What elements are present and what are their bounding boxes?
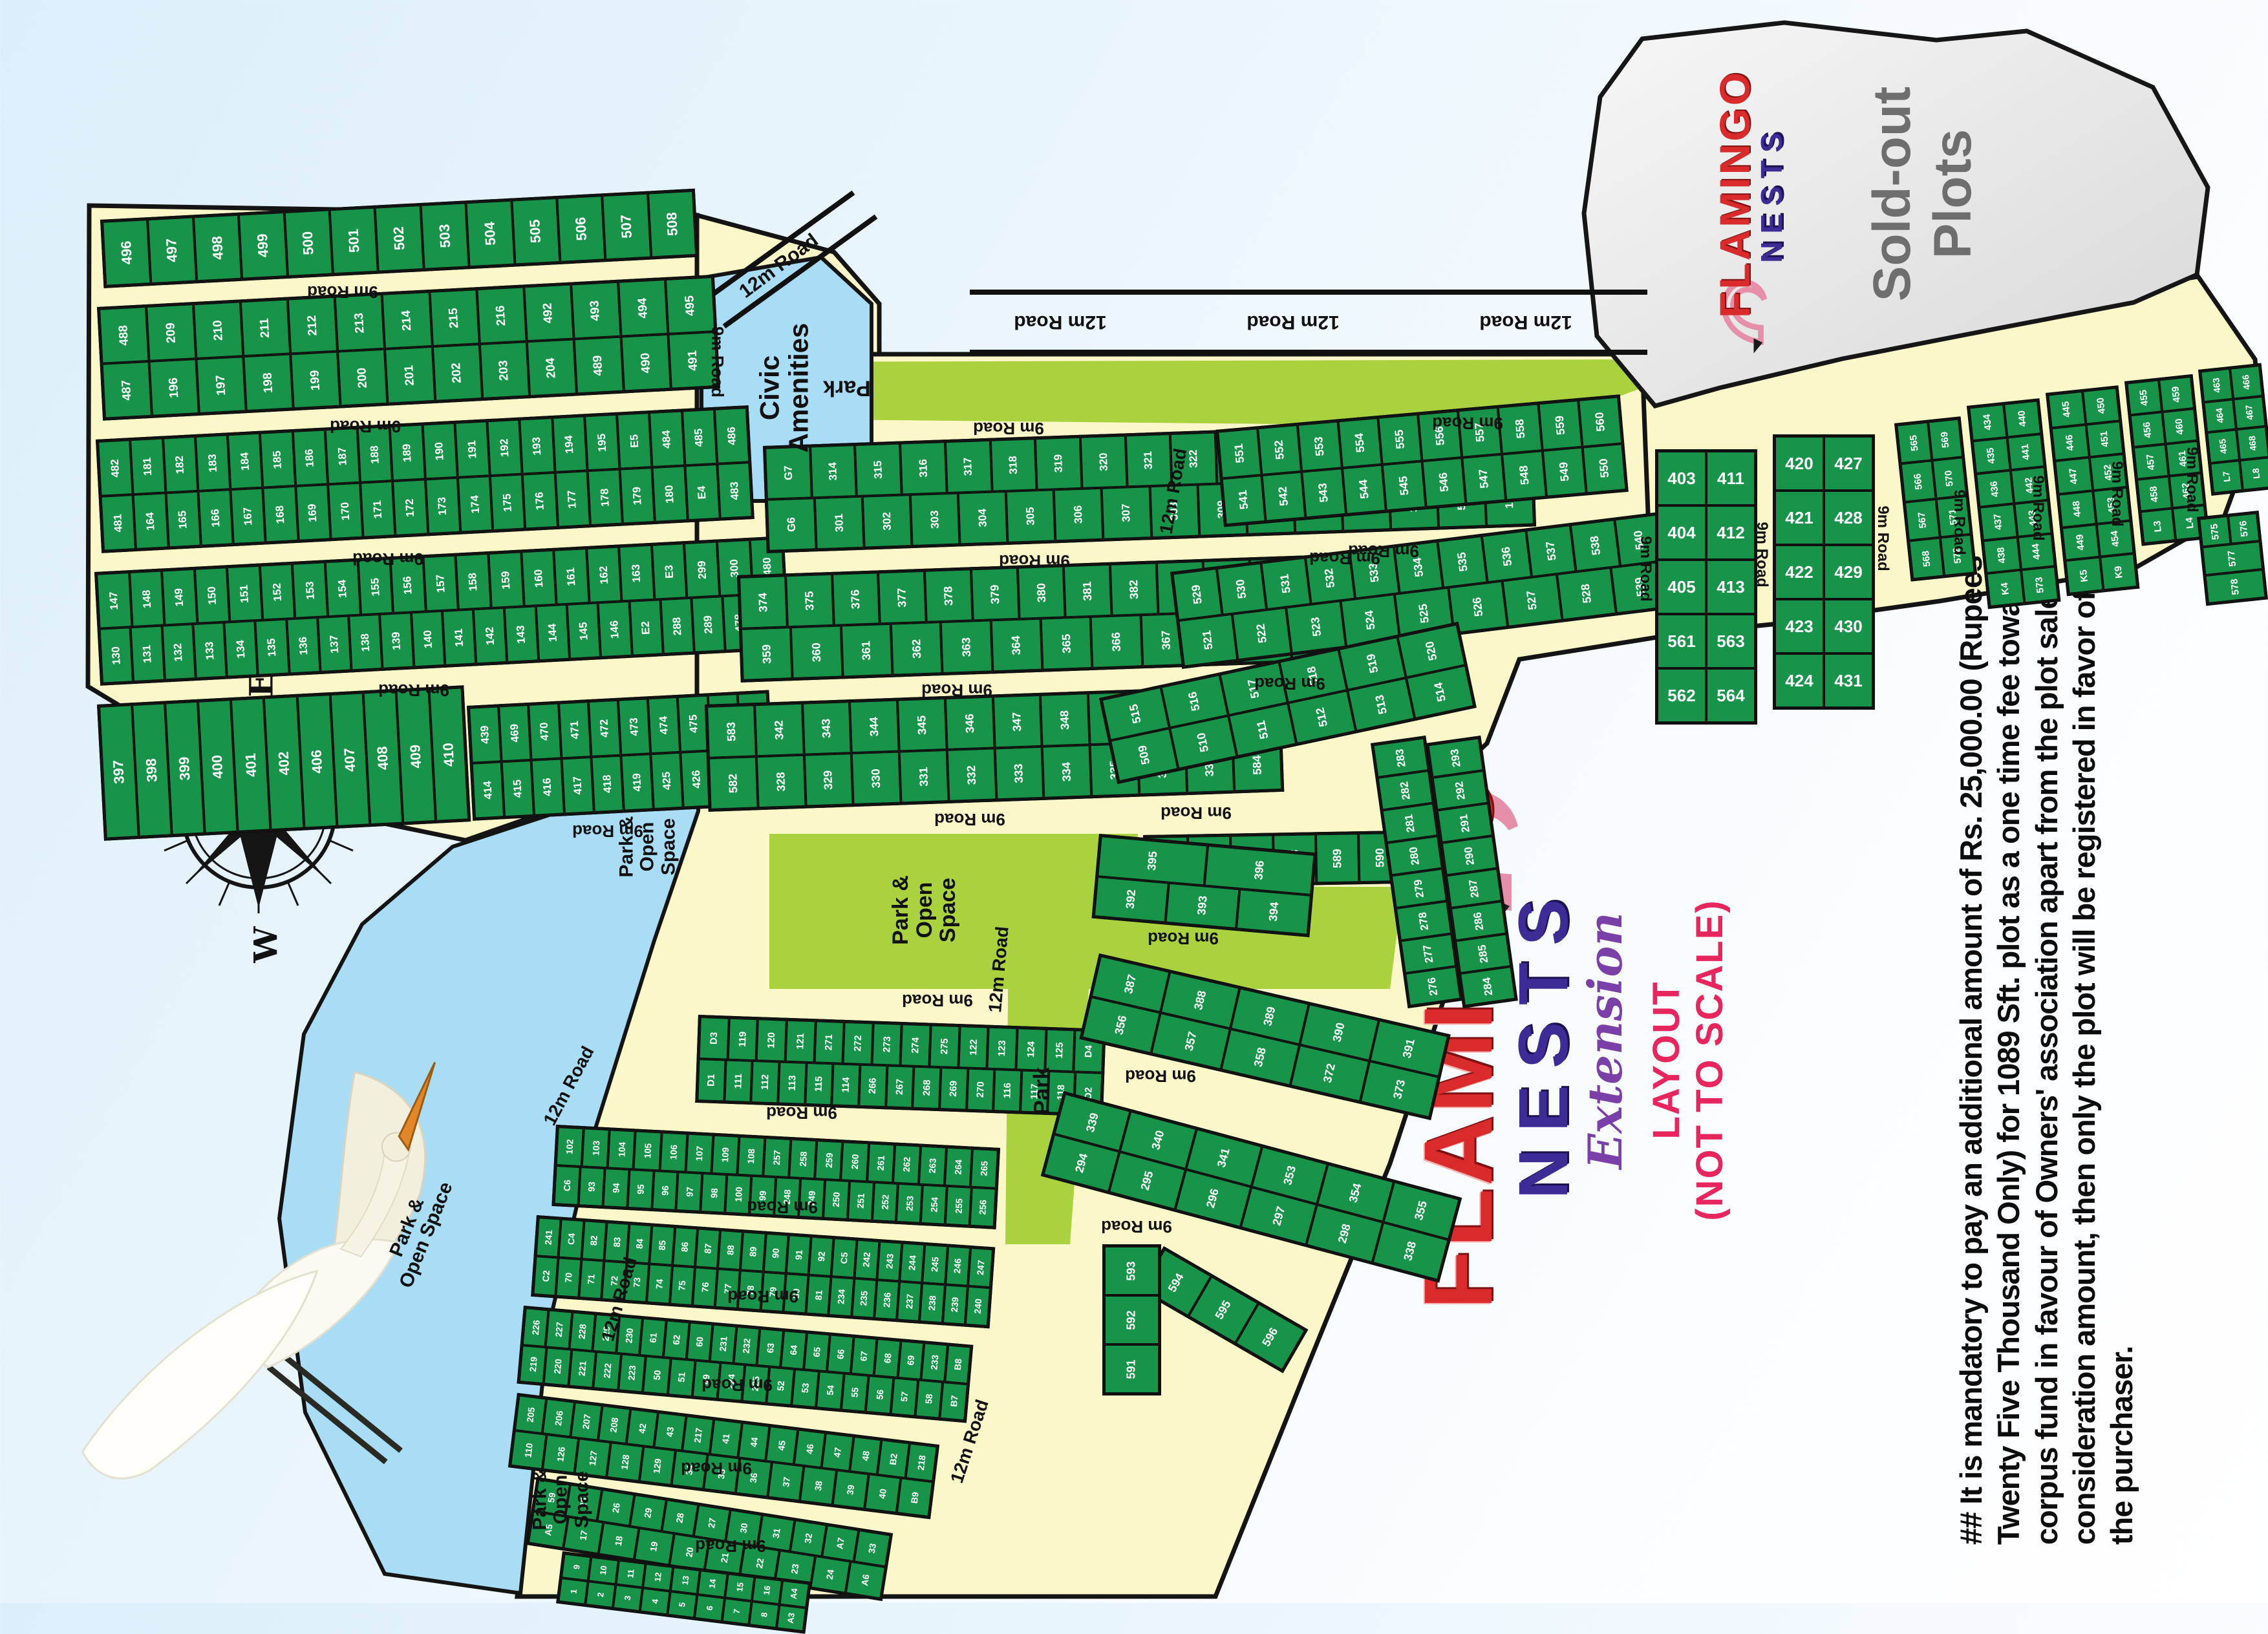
plot-194: 194 (552, 416, 588, 472)
plot-140: 140 (411, 611, 445, 667)
plot-number: 68 (882, 1353, 893, 1364)
plot-number: 266 (867, 1077, 879, 1094)
plot-number: 530 (1234, 578, 1250, 599)
plot-number: 576 (2238, 520, 2251, 537)
plot-403: 403 (1657, 451, 1706, 505)
plot-E3: E3 (652, 543, 687, 600)
plot-198: 198 (244, 354, 294, 411)
plot-number: 263 (927, 1158, 938, 1173)
plot-number: A6 (859, 1573, 872, 1586)
plot-number: 282 (1398, 780, 1413, 800)
plot-276: 276 (1405, 966, 1460, 1006)
plot-246: 246 (945, 1246, 970, 1286)
plot-number: 194 (562, 434, 576, 453)
plot-number: 268 (921, 1079, 933, 1096)
plot-number: 523 (1308, 617, 1324, 637)
plot-row: 422429 (1775, 545, 1873, 599)
plot-number: 183 (206, 453, 219, 472)
plot-number: B8 (952, 1358, 963, 1370)
plot-number: 18 (613, 1535, 625, 1547)
plot-237: 237 (897, 1281, 922, 1321)
plot-number: 421 (1785, 508, 1813, 528)
plot-217: 217 (682, 1416, 714, 1454)
plot-488: 488 (99, 306, 149, 364)
plot-129: 129 (639, 1446, 675, 1485)
plot-number: 561 (1667, 631, 1695, 652)
plot-number: 15 (734, 1582, 745, 1592)
plot-65: 65 (804, 1332, 830, 1371)
plot-number: 280 (1407, 845, 1422, 865)
plot-490: 490 (621, 334, 670, 392)
plot-578: 578 (2205, 569, 2265, 604)
plot-number: 283 (1393, 748, 1409, 768)
plot-284: 284 (1460, 966, 1515, 1006)
road-label: 9m Road (1432, 414, 1503, 432)
plot-103: 103 (582, 1128, 610, 1168)
road-label: 9m Road (999, 552, 1070, 570)
plot-176: 176 (522, 472, 558, 529)
plot-501: 501 (330, 207, 379, 275)
plot-number: 52 (775, 1381, 786, 1392)
plot-number: 492 (541, 302, 557, 324)
plot-95: 95 (627, 1169, 654, 1209)
plot-number: 420 (1785, 454, 1813, 474)
plot-B8: B8 (945, 1344, 971, 1383)
plot-A6: A6 (846, 1562, 886, 1599)
plot-number: K4 (1999, 582, 2011, 595)
plot-number: 304 (976, 509, 990, 527)
plot-153: 153 (292, 562, 328, 619)
plot-498: 498 (193, 215, 242, 282)
plot-269: 269 (939, 1067, 968, 1110)
plot-number: 365 (1059, 633, 1073, 653)
plot-number: 392 (1124, 889, 1139, 910)
plot-number: 56 (874, 1389, 885, 1400)
plot-number: 591 (1125, 1359, 1139, 1379)
plot-number: 156 (401, 575, 414, 594)
plot-number: 543 (1316, 483, 1332, 504)
plot-528: 528 (1556, 567, 1616, 620)
plot-number: 119 (737, 1032, 749, 1048)
plot-number: 503 (436, 224, 454, 248)
plot-number: 143 (515, 624, 528, 643)
plot-number: 467 (2243, 405, 2255, 421)
plot-209: 209 (146, 304, 196, 361)
plot-G6: G6 (767, 498, 817, 551)
plot-343: 343 (802, 701, 851, 755)
plot-number: 149 (173, 588, 186, 606)
plot-503: 503 (420, 202, 469, 270)
plot-565: 565 (1896, 422, 1932, 464)
plot-33: 33 (853, 1530, 890, 1567)
plot-242: 242 (854, 1240, 879, 1280)
plot-number: 258 (797, 1151, 808, 1167)
plot-105: 105 (634, 1130, 661, 1171)
plot-number: 471 (568, 721, 581, 739)
plot-number: 221 (577, 1361, 588, 1377)
compass-west: W (247, 926, 285, 962)
plot-number: 391 (1400, 1037, 1417, 1059)
plot-C2: C2 (533, 1256, 558, 1296)
plot-number: 511 (1254, 719, 1272, 741)
plot-467: 467 (2233, 396, 2266, 429)
plot-number: 180 (663, 484, 676, 503)
plot-128: 128 (607, 1442, 643, 1481)
plot-number: L7 (2221, 471, 2232, 483)
plot-number: 485 (692, 428, 706, 447)
plot-number: 510 (1195, 732, 1212, 754)
plot-70: 70 (556, 1258, 581, 1298)
plot-number: 468 (2247, 435, 2258, 451)
plot-block-K: 420427421428422429423430424431 (1773, 434, 1875, 710)
plot-507: 507 (602, 193, 651, 260)
plot-number: 130 (109, 646, 123, 664)
plot-number: 487 (120, 379, 135, 401)
plot-row: L7L8 (2210, 457, 2268, 494)
road-label: 9m Road (1125, 1067, 1196, 1085)
plot-number: 252 (879, 1194, 890, 1210)
plot-331: 331 (899, 750, 948, 803)
plot-417: 417 (561, 757, 594, 814)
plot-number: 27 (706, 1517, 718, 1529)
plot-342: 342 (754, 703, 804, 757)
plot-133: 133 (193, 622, 227, 679)
plot-number: 531 (1278, 573, 1294, 593)
plot-404: 404 (1657, 505, 1706, 560)
plot-330: 330 (851, 752, 901, 805)
plot-number: 333 (1012, 763, 1026, 783)
plot-number: A4 (789, 1588, 800, 1600)
plot-number: 43 (665, 1426, 676, 1437)
plot-304: 304 (958, 491, 1008, 545)
plot-number: 578 (2229, 578, 2242, 595)
plot-number: 262 (901, 1156, 912, 1172)
plot-number: 155 (369, 577, 382, 596)
plot-number: 257 (771, 1150, 782, 1165)
plot-number: 538 (1587, 535, 1603, 556)
plot-number: 450 (2095, 398, 2108, 415)
plot-number: 426 (690, 770, 703, 789)
plot-row: 565569 (1896, 419, 1963, 464)
plot-307: 307 (1102, 486, 1151, 540)
plot-number: 582 (726, 773, 740, 793)
plot-16: 16 (752, 1577, 782, 1604)
plot-76: 76 (692, 1267, 718, 1307)
plot-number: 377 (895, 588, 910, 608)
plot-column-C591: 593592591 (1102, 1244, 1161, 1395)
plot-183: 183 (195, 434, 231, 491)
plot-40: 40 (864, 1474, 901, 1513)
plot-number: 482 (109, 458, 122, 477)
plot-360: 360 (791, 625, 842, 679)
soldout-line2: Plots (1923, 26, 1984, 362)
layout-note-line2: (NOT TO SCALE) (1689, 866, 1732, 1254)
plot-number: 55 (849, 1387, 860, 1398)
plot-456: 456 (2130, 412, 2166, 447)
plot-58: 58 (915, 1379, 943, 1419)
plot-number: 589 (1331, 849, 1345, 868)
plot-120: 120 (756, 1019, 787, 1062)
plot-number: 359 (760, 644, 774, 664)
plot-number: 356 (1112, 1014, 1129, 1036)
plot-number: 67 (859, 1350, 870, 1361)
plot-number: 204 (544, 357, 559, 378)
plot-number: 435 (1985, 447, 1998, 465)
plot-158: 158 (456, 553, 491, 610)
plot-number: 573 (2033, 577, 2046, 594)
plot-number: 9 (571, 1564, 581, 1570)
plot-165: 165 (166, 491, 201, 548)
plot-number: 494 (636, 297, 651, 319)
plot-582: 582 (709, 756, 758, 810)
plot-L8: L8 (2240, 457, 2268, 491)
plot-241: 241 (536, 1217, 561, 1257)
plot-number: 307 (1120, 504, 1133, 522)
plot-number: 250 (831, 1192, 842, 1207)
plot-number: 406 (308, 749, 326, 774)
plot-254: 254 (921, 1185, 947, 1225)
plot-number: 70 (563, 1272, 574, 1283)
plot-number: 179 (630, 486, 644, 505)
road-label: 9m Road (1101, 1218, 1172, 1236)
plot-489: 489 (573, 337, 623, 394)
plot-number: 504 (481, 221, 499, 246)
plot-94: 94 (603, 1168, 629, 1208)
plot-number: 54 (824, 1385, 835, 1396)
area-label: Park & Open Space (616, 816, 679, 877)
plot-number: 74 (654, 1279, 665, 1289)
plot-8: 8 (749, 1601, 779, 1628)
plot-9: 9 (561, 1553, 592, 1580)
plot-number: 554 (1353, 432, 1368, 453)
plot-110: 110 (510, 1430, 546, 1470)
plot-564: 564 (1706, 668, 1755, 723)
plot-number: 343 (820, 718, 834, 738)
plot-number: 75 (677, 1280, 688, 1291)
plot-213: 213 (335, 294, 385, 352)
plot-number: 593 (1125, 1261, 1139, 1280)
plot-number: 29 (642, 1507, 654, 1519)
road-label: 9m Road (2108, 461, 2125, 526)
plot-495: 495 (665, 277, 715, 334)
plot-number: 474 (658, 716, 671, 734)
plot-54: 54 (816, 1371, 844, 1410)
plot-109: 109 (711, 1135, 739, 1175)
plot-number: 408 (374, 745, 392, 770)
plot-487: 487 (102, 361, 152, 419)
plot-number: 176 (533, 491, 547, 510)
plot-number: 339 (1084, 1111, 1102, 1133)
plot-226: 226 (522, 1308, 549, 1346)
plot-469: 469 (498, 705, 531, 761)
plot-number: 83 (611, 1236, 622, 1247)
plot-number: 527 (1524, 590, 1541, 611)
plot-number: C5 (839, 1252, 850, 1264)
plot-317: 317 (945, 440, 992, 493)
plot-number: 6 (705, 1605, 715, 1611)
plot-number: 124 (1025, 1041, 1037, 1058)
plot-number: 341 (1215, 1147, 1233, 1169)
plot-number: 86 (679, 1242, 690, 1253)
plot-number: 10 (598, 1565, 609, 1576)
plot-151: 151 (227, 566, 262, 622)
plot-569: 569 (1928, 419, 1963, 461)
plot-549: 549 (1542, 447, 1586, 497)
plot-112: 112 (751, 1061, 780, 1103)
plot-481: 481 (101, 494, 136, 551)
plot-number: 148 (140, 589, 153, 608)
plot-506: 506 (557, 195, 606, 262)
plot-number: 259 (823, 1152, 834, 1168)
plot-592: 592 (1104, 1295, 1159, 1344)
road-label: 12m Road (1246, 312, 1339, 332)
plot-191: 191 (455, 421, 490, 478)
plot-number: 173 (436, 496, 449, 515)
soldout-logo: FLAMINGO NESTS (1713, 39, 1856, 349)
plot-number: 62 (670, 1334, 681, 1345)
plot-164: 164 (133, 493, 169, 549)
plot-number: 536 (1499, 546, 1515, 566)
plot-number: 357 (1182, 1030, 1199, 1052)
plot-number: 98 (709, 1188, 720, 1198)
plot-483: 483 (717, 462, 753, 519)
plot-552: 552 (1257, 425, 1301, 475)
plot-number: 389 (1261, 1005, 1278, 1027)
plot-303: 303 (910, 493, 960, 547)
plot-554: 554 (1338, 418, 1382, 468)
plot-500: 500 (284, 209, 333, 277)
plot-number: 316 (917, 459, 930, 478)
plot-number: 157 (434, 574, 447, 593)
plot-413: 413 (1706, 560, 1755, 614)
road-label: 9m Road (378, 681, 449, 699)
plot-number: 184 (238, 452, 251, 471)
plot-number: 114 (840, 1077, 852, 1093)
plot-number: 111 (733, 1074, 744, 1089)
plot-126: 126 (542, 1434, 579, 1474)
plot-number: 41 (720, 1433, 732, 1444)
plot-D1: D1 (697, 1059, 725, 1101)
plot-number: 24 (824, 1569, 836, 1580)
logo-extension-text: Extension (1579, 750, 1631, 1332)
road-label: 12m Road (1014, 312, 1106, 332)
road-label: 9m Road (902, 992, 973, 1010)
plot-163: 163 (619, 545, 654, 602)
plot-number: 84 (634, 1238, 645, 1249)
plot-number: 475 (687, 714, 701, 733)
plot-37: 37 (767, 1462, 804, 1501)
plot-316: 316 (900, 441, 947, 494)
plot-number: 375 (802, 591, 817, 611)
plot-508: 508 (648, 191, 697, 258)
plot-number: 569 (1939, 431, 1952, 449)
plot-number: 8 (759, 1611, 769, 1617)
plot-228: 228 (569, 1312, 595, 1351)
plot-number: 85 (657, 1240, 668, 1251)
plot-number: 201 (402, 365, 418, 386)
plot-number: 12 (652, 1572, 663, 1582)
plot-number: 459 (2170, 385, 2183, 403)
plot-number: 188 (368, 445, 381, 463)
plot-88: 88 (718, 1230, 743, 1270)
road-label: 9m Road (681, 1459, 752, 1478)
plot-number: 11 (625, 1569, 636, 1578)
plot-number: 332 (965, 765, 979, 785)
plot-number: 159 (499, 571, 513, 589)
plot-427: 427 (1824, 436, 1873, 491)
plot-256: 256 (970, 1187, 996, 1227)
plot-361: 361 (840, 624, 892, 677)
plot-number: 213 (352, 312, 368, 334)
plot-548: 548 (1502, 451, 1546, 501)
plot-197: 197 (197, 356, 246, 414)
plot-466: 466 (2230, 365, 2263, 399)
plot-number: 165 (177, 510, 190, 529)
plot-328: 328 (756, 755, 806, 809)
plot-261: 261 (867, 1143, 895, 1183)
plot-258: 258 (789, 1139, 817, 1179)
road-label: 9m Road (1148, 929, 1219, 948)
plot-173: 173 (425, 478, 460, 535)
plot-number: 193 (530, 436, 544, 455)
layout-map: E S W N ## It is mandatory to pay an add… (0, 0, 2268, 1603)
plot-number: 382 (1127, 579, 1141, 599)
plot-55: 55 (840, 1373, 868, 1412)
plot-number: 76 (700, 1282, 711, 1293)
plot-number: 162 (597, 566, 611, 584)
plot-number: 240 (972, 1299, 983, 1314)
plot-number: 93 (586, 1182, 597, 1192)
plot-number: 393 (1195, 895, 1210, 916)
plot-number: 158 (466, 572, 480, 591)
plot-number: 400 (209, 754, 227, 779)
plot-number: 424 (1785, 671, 1813, 691)
plot-number: 388 (1192, 990, 1209, 1012)
plot-E5: E5 (617, 412, 652, 469)
plot-1: 1 (558, 1578, 588, 1605)
plot-number: 415 (511, 779, 524, 798)
plot-number: 472 (597, 719, 611, 737)
plot-number: 136 (296, 636, 310, 655)
plot-382: 382 (1110, 562, 1159, 615)
plot-number: 267 (894, 1079, 906, 1096)
plot-266: 266 (859, 1065, 887, 1107)
plot-row: 405413 (1657, 560, 1755, 614)
plot-446: 446 (2051, 424, 2090, 461)
plot-215: 215 (429, 289, 479, 346)
plot-445: 445 (2048, 391, 2086, 428)
plot-number: 94 (610, 1183, 621, 1193)
plot-number: 139 (390, 631, 403, 650)
plot-97: 97 (676, 1172, 703, 1212)
plot-394: 394 (1236, 889, 1311, 935)
plot-299: 299 (684, 542, 720, 599)
road-label: 9m Road (352, 550, 423, 568)
road-label: 9m Road (727, 1288, 798, 1306)
plot-531: 531 (1261, 557, 1311, 609)
plot-number: 584 (1250, 755, 1265, 775)
plot-377: 377 (878, 571, 926, 624)
plot-number: 568 (1920, 550, 1933, 568)
road-label: 9m Road (1637, 536, 1654, 601)
plot-364: 364 (990, 619, 1042, 672)
plot-381: 381 (1064, 564, 1112, 617)
plot-number: 570 (1943, 469, 1956, 487)
plot-number: 208 (608, 1417, 621, 1433)
plot-374: 374 (739, 575, 787, 628)
plot-number: 50 (651, 1370, 662, 1381)
plot-number: 565 (1908, 434, 1921, 452)
